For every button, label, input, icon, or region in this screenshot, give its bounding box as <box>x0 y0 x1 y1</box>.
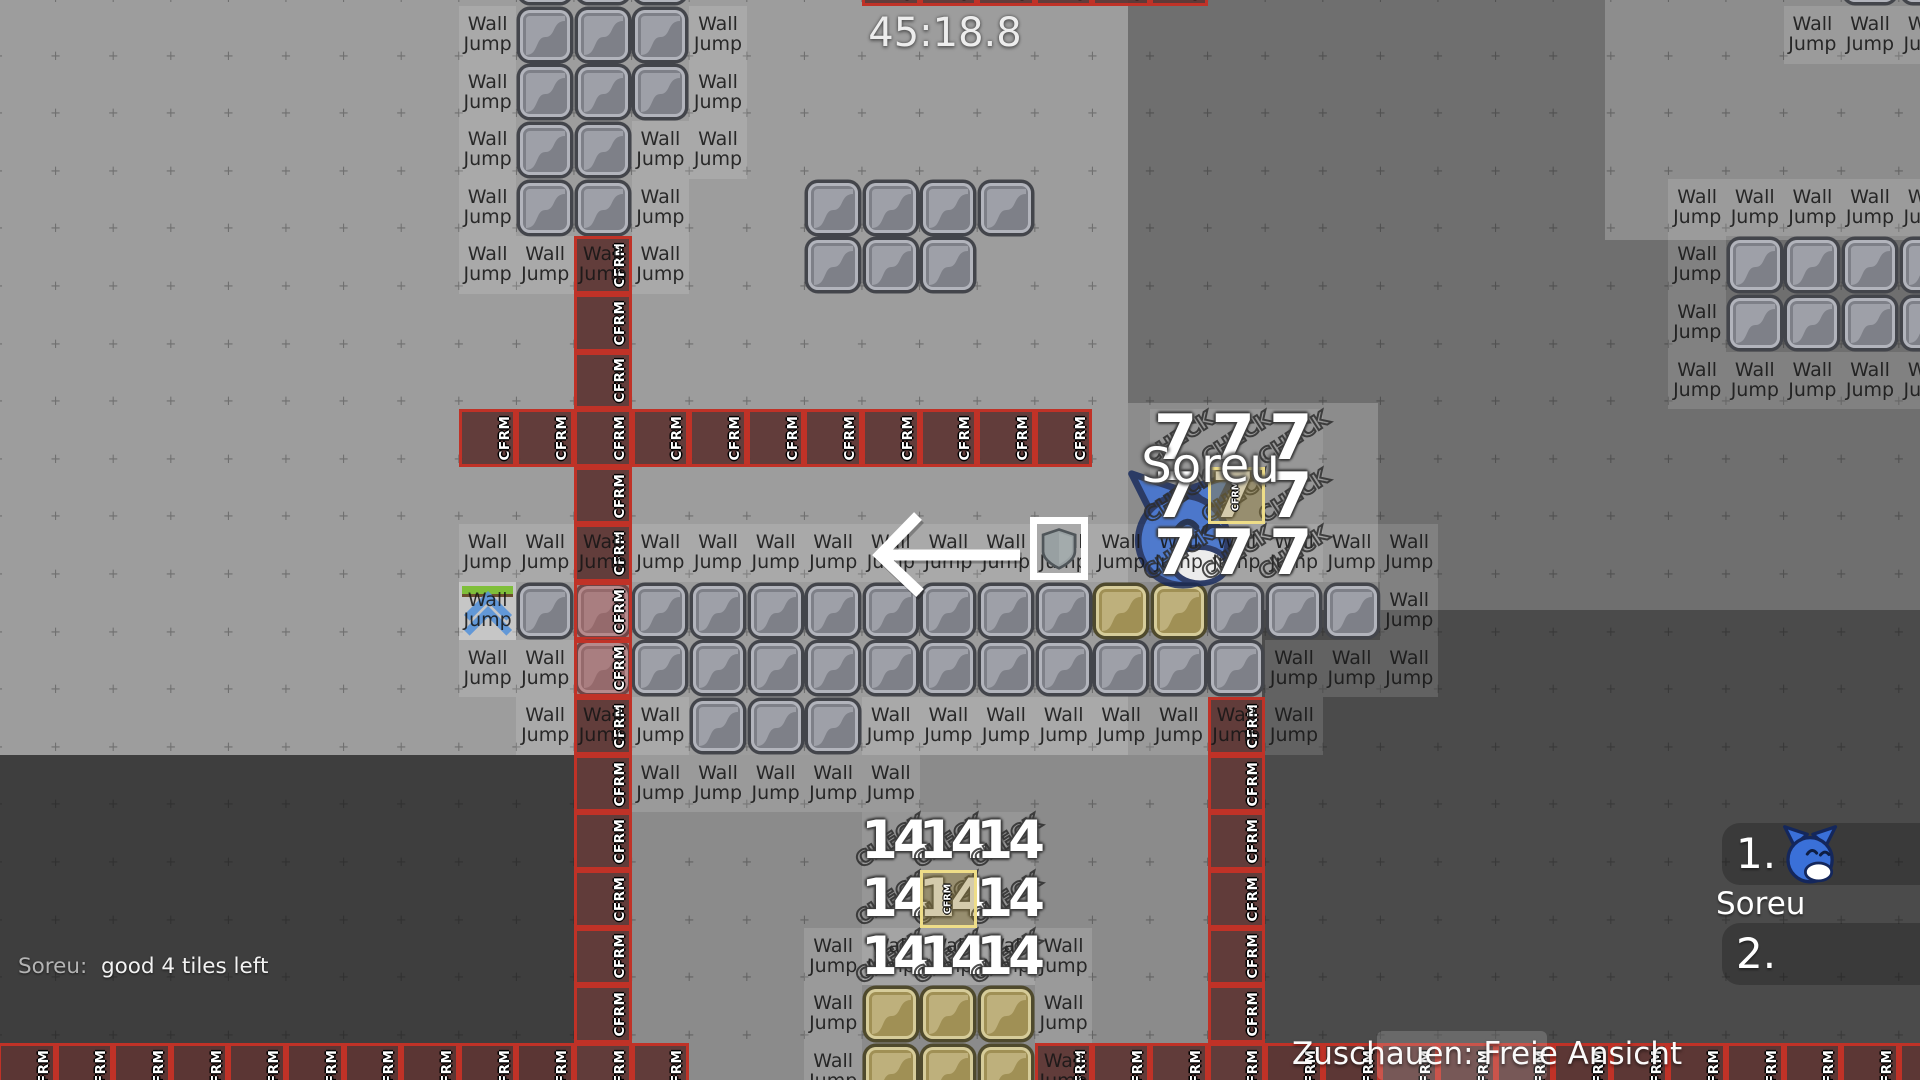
wall-jump-line2: Jump <box>1270 724 1318 746</box>
wall-jump-label: WallJump <box>1265 640 1323 698</box>
wall-jump-label: WallJump <box>459 236 517 294</box>
tile-swoosh <box>696 589 741 634</box>
wall-jump-line2: Jump <box>1097 551 1145 573</box>
cfrm-label: CFRM <box>1899 1043 1920 1080</box>
wall-jump-line2: Jump <box>694 551 742 573</box>
wall-jump-label: WallJump <box>1323 524 1381 582</box>
cfrm-label: CFRM <box>1726 1043 1784 1080</box>
cfrm-label-text: CFRM <box>957 416 973 461</box>
map-tile-gold <box>981 989 1031 1039</box>
switch-number: 14 <box>977 928 1035 986</box>
map-tile-gray <box>1730 298 1780 348</box>
tile-swoosh <box>869 243 914 288</box>
wall-jump-line2: Jump <box>636 724 684 746</box>
wall-jump-line1: Wall <box>1908 13 1920 35</box>
wall-jump-label: WallJump <box>1380 524 1438 582</box>
cfrm-label-text: CFRM <box>36 1049 52 1080</box>
wall-jump-line2: Jump <box>694 91 742 113</box>
switch-number: 14 <box>920 928 978 986</box>
wall-jump-line1: Wall <box>698 531 738 553</box>
wall-jump-line1: Wall <box>698 128 738 150</box>
wall-jump-line1: Wall <box>1677 186 1717 208</box>
tile-swoosh <box>638 646 683 691</box>
map-tile-gold <box>866 989 916 1039</box>
tile-swoosh <box>754 646 799 691</box>
wall-jump-label: WallJump <box>516 236 574 294</box>
tile-swoosh <box>926 186 971 231</box>
map-tile-gray <box>520 125 570 175</box>
cfrm-label-text: CFRM <box>612 416 628 461</box>
wall-jump-line1: Wall <box>1908 186 1920 208</box>
cfrm-label-text: CFRM <box>93 1049 109 1080</box>
map-tile-gray <box>1845 240 1895 290</box>
wall-jump-line1: Wall <box>641 128 681 150</box>
wall-jump-line1: Wall <box>1044 992 1084 1014</box>
wall-jump-line1: Wall <box>1850 186 1890 208</box>
map-tile-gray <box>1096 643 1146 693</box>
map-tile-gray <box>981 183 1031 233</box>
tile-swoosh <box>869 992 914 1037</box>
wall-jump-label: WallJump <box>689 6 747 64</box>
wall-jump-label: WallJump <box>1035 928 1093 986</box>
player-nameplate: Soreu <box>1128 438 1293 494</box>
wall-jump-label: WallJump <box>862 755 920 813</box>
wall-jump-line1: Wall <box>1850 359 1890 381</box>
wall-jump-label: WallJump <box>1841 179 1899 237</box>
wall-jump-line2: Jump <box>1731 206 1779 228</box>
scoreboard-row-1: 1. <box>1722 823 1920 885</box>
map-tile-gray <box>1730 240 1780 290</box>
wall-jump-line2: Jump <box>751 551 799 573</box>
wall-jump-line2: Jump <box>1155 724 1203 746</box>
wall-jump-label: WallJump <box>1208 697 1266 755</box>
cfrm-label-text: CFRM <box>612 358 628 403</box>
cfrm-label-text: CFRM <box>612 992 628 1037</box>
map-tile-gray <box>635 10 685 60</box>
scoreboard-rank-1: 1. <box>1736 823 1776 885</box>
tile-swoosh <box>1214 589 1259 634</box>
direction-arrow-left <box>860 500 1040 610</box>
wall-jump-line1: Wall <box>583 243 623 265</box>
wall-jump-line1: Wall <box>1101 531 1141 553</box>
wall-jump-line1: Wall <box>1044 1050 1084 1072</box>
cfrm-label-text: CFRM <box>1188 1049 1204 1080</box>
tile-swoosh <box>811 186 856 231</box>
wall-jump-line2: Jump <box>636 782 684 804</box>
wall-jump-label: WallJump <box>574 697 632 755</box>
wall-jump-line1: Wall <box>468 589 508 611</box>
map-tile-gray <box>751 701 801 751</box>
cfrm-label-text: CFRM <box>785 416 801 461</box>
map-tile-gray <box>1903 240 1920 290</box>
cfrm-label: CFRM <box>574 640 632 698</box>
tile-swoosh <box>1733 243 1778 288</box>
wall-jump-label: WallJump <box>459 640 517 698</box>
game-viewport: ++++++++++++++++++++++++++++++++++++++++… <box>0 0 1920 1080</box>
wall-jump-line2: Jump <box>809 1012 857 1034</box>
wall-jump-label: WallJump <box>574 524 632 582</box>
wall-jump-line1: Wall <box>1793 186 1833 208</box>
wall-jump-label: WallJump <box>1668 179 1726 237</box>
wall-jump-line2: Jump <box>809 551 857 573</box>
wall-jump-line2: Jump <box>1270 667 1318 689</box>
cfrm-label-text: CFRM <box>669 416 685 461</box>
wall-jump-label: WallJump <box>1092 524 1150 582</box>
switch-number-text: 14 <box>976 929 1040 985</box>
tile-swoosh <box>638 13 683 58</box>
map-tile-gray <box>520 67 570 117</box>
cfrm-label: CFRM <box>1035 409 1093 467</box>
tile-swoosh <box>984 646 1029 691</box>
wall-jump-line2: Jump <box>1673 321 1721 343</box>
wall-jump-line2: Jump <box>636 206 684 228</box>
cfrm-label: CFRM <box>574 755 632 813</box>
cfrm-label: CFRM <box>516 409 574 467</box>
map-tile-gray <box>1787 240 1837 290</box>
wall-jump-label: WallJump <box>1380 640 1438 698</box>
map-tile-gray <box>1327 586 1377 636</box>
map-tile-gray <box>981 643 1031 693</box>
cfrm-label: CFRM <box>1208 1043 1266 1080</box>
cfrm-label: CFRM <box>574 812 632 870</box>
wall-jump-line2: Jump <box>1846 379 1894 401</box>
wall-jump-label: WallJump <box>804 985 862 1043</box>
wall-jump-label: WallJump <box>689 755 747 813</box>
cfrm-label-text: CFRM <box>1245 876 1261 921</box>
tile-swoosh <box>1157 646 1202 691</box>
wall-jump-line2: Jump <box>463 551 511 573</box>
switch-number-text: 7 <box>1269 524 1312 581</box>
wall-jump-line2: Jump <box>1385 667 1433 689</box>
wall-jump-label: WallJump <box>516 524 574 582</box>
map-tile-gray <box>578 183 628 233</box>
wall-jump-line1: Wall <box>468 128 508 150</box>
wall-jump-line1: Wall <box>698 13 738 35</box>
wall-jump-label: WallJump <box>1035 697 1093 755</box>
shield-icon <box>1037 524 1081 573</box>
wall-jump-label: WallJump <box>1841 6 1899 64</box>
wall-jump-label: WallJump <box>804 1043 862 1080</box>
map-tile-gray <box>751 643 801 693</box>
wall-jump-line1: Wall <box>1677 359 1717 381</box>
wall-jump-label: WallJump <box>1150 697 1208 755</box>
tile-swoosh <box>1042 589 1087 634</box>
cfrm-label-text: CFRM <box>1879 1049 1895 1080</box>
switch-number: 7 <box>1208 524 1266 582</box>
cfrm-label-text: CFRM <box>612 588 628 633</box>
switch-number: 14 <box>862 812 920 870</box>
cfrm-label-text: CFRM <box>209 1049 225 1080</box>
cfrm-label: CFRM <box>113 1043 171 1080</box>
wall-jump-line1: Wall <box>756 762 796 784</box>
switch-number: 7 <box>1150 524 1208 582</box>
wall-jump-line1: Wall <box>698 71 738 93</box>
cfrm-label: CFRM <box>56 1043 114 1080</box>
wall-jump-line2: Jump <box>1903 206 1920 228</box>
wall-jump-label: WallJump <box>862 697 920 755</box>
map-tile-gray <box>1269 586 1319 636</box>
cfrm-label: CFRM <box>574 985 632 1043</box>
tile-swoosh <box>523 13 568 58</box>
wall-jump-line2: Jump <box>1731 379 1779 401</box>
wall-jump-line2: Jump <box>1385 551 1433 573</box>
wall-jump-line1: Wall <box>871 762 911 784</box>
wall-jump-line1: Wall <box>525 531 565 553</box>
wall-jump-label: WallJump <box>747 755 805 813</box>
wall-jump-line2: Jump <box>1846 33 1894 55</box>
wall-jump-line2: Jump <box>1039 1012 1087 1034</box>
wall-jump-label: WallJump <box>1092 697 1150 755</box>
wall-jump-line2: Jump <box>982 724 1030 746</box>
tile-swoosh <box>1099 646 1144 691</box>
map-tile-gray <box>808 240 858 290</box>
wall-jump-line1: Wall <box>641 704 681 726</box>
wall-jump-line2: Jump <box>867 782 915 804</box>
wall-jump-line2: Jump <box>809 1070 857 1080</box>
cfrm-label: CFRM <box>1784 1043 1842 1080</box>
wall-jump-line1: Wall <box>468 186 508 208</box>
wall-jump-line1: Wall <box>1101 704 1141 726</box>
wall-jump-label: WallJump <box>1380 582 1438 640</box>
cfrm-label: CFRM <box>977 409 1035 467</box>
wall-jump-line1: Wall <box>1044 935 1084 957</box>
wall-jump-label: WallJump <box>1668 294 1726 352</box>
wall-jump-label: WallJump <box>1265 697 1323 755</box>
switch-number: 14 <box>862 928 920 986</box>
wall-jump-label: WallJump <box>747 524 805 582</box>
map-tile-gray <box>693 586 743 636</box>
wall-jump-line1: Wall <box>1389 647 1429 669</box>
tile-swoosh <box>1214 646 1259 691</box>
cfrm-label: CFRM <box>1208 985 1266 1043</box>
wall-jump-label: WallJump <box>516 640 574 698</box>
cfrm-label: CFRM <box>632 1043 690 1080</box>
mini-cfrm-label: CFRM <box>923 873 975 925</box>
cfrm-label: CFRM <box>574 352 632 410</box>
cfrm-label-text: CFRM <box>554 416 570 461</box>
switch-number-text: 7 <box>1154 524 1197 581</box>
wall-jump-label: WallJump <box>804 928 862 986</box>
cfrm-label: CFRM <box>344 1043 402 1080</box>
wall-jump-label: WallJump <box>632 697 690 755</box>
cfrm-label-text: CFRM <box>1245 992 1261 1037</box>
wall-jump-label: WallJump <box>459 179 517 237</box>
wall-jump-label: WallJump <box>804 755 862 813</box>
map-tile-gray <box>808 643 858 693</box>
wall-jump-line1: Wall <box>1332 647 1372 669</box>
cfrm-label: CFRM <box>1208 812 1266 870</box>
wall-jump-line1: Wall <box>813 992 853 1014</box>
wall-jump-label: WallJump <box>1323 640 1381 698</box>
cfrm-label-text: CFRM <box>612 819 628 864</box>
wall-jump-label: WallJump <box>920 697 978 755</box>
cfrm-label: CFRM <box>574 409 632 467</box>
tile-swoosh <box>523 70 568 115</box>
switch-number: 14 <box>920 812 978 870</box>
wall-jump-line2: Jump <box>579 724 627 746</box>
wall-jump-line1: Wall <box>1677 243 1717 265</box>
tile-swoosh <box>926 646 971 691</box>
chat-author: Soreu: <box>18 954 87 979</box>
wall-jump-line1: Wall <box>1793 359 1833 381</box>
cfrm-label-text: CFRM <box>612 473 628 518</box>
armor-pickup-marker <box>1030 517 1088 580</box>
chat-line: Soreu: good 4 tiles left <box>18 954 268 979</box>
wall-jump-line2: Jump <box>694 782 742 804</box>
wall-jump-label: WallJump <box>459 582 517 640</box>
tile-swoosh <box>984 186 1029 231</box>
cfrm-label: CFRM <box>1208 755 1266 813</box>
tile-swoosh <box>984 992 1029 1037</box>
map-tile-gray <box>866 643 916 693</box>
cfrm-label-text: CFRM <box>1821 1049 1837 1080</box>
wall-jump-label: WallJump <box>632 755 690 813</box>
wall-jump-line1: Wall <box>1677 301 1717 323</box>
map-tile-gray <box>1211 643 1261 693</box>
wall-jump-line2: Jump <box>1673 206 1721 228</box>
map-tile-gray <box>520 586 570 636</box>
wall-jump-line1: Wall <box>1793 13 1833 35</box>
wall-jump-line1: Wall <box>1735 359 1775 381</box>
tile-swoosh <box>696 704 741 749</box>
wall-jump-line2: Jump <box>636 551 684 573</box>
map-tile-gray <box>635 643 685 693</box>
wall-jump-line2: Jump <box>521 667 569 689</box>
tile-swoosh <box>926 243 971 288</box>
cfrm-label-text: CFRM <box>497 1049 513 1080</box>
cfrm-label: CFRM <box>1208 928 1266 986</box>
cfrm-label: CFRM <box>1841 1043 1899 1080</box>
cfrm-label-text: CFRM <box>612 300 628 345</box>
map-tile-gray <box>751 586 801 636</box>
switch-number: 7 <box>1265 524 1323 582</box>
cfrm-label: CFRM <box>920 0 978 6</box>
tile-swoosh <box>1848 301 1893 346</box>
cfrm-label-text: CFRM <box>612 1049 628 1080</box>
tile-swoosh <box>1906 243 1920 288</box>
switch-number-text: 7 <box>1212 524 1255 581</box>
wall-jump-line2: Jump <box>694 33 742 55</box>
wall-jump-line1: Wall <box>468 243 508 265</box>
wall-jump-label: WallJump <box>632 121 690 179</box>
cfrm-label-text: CFRM <box>842 416 858 461</box>
map-tile-gold <box>981 1047 1031 1080</box>
wall-jump-line2: Jump <box>579 263 627 285</box>
scoreboard-name-1: Soreu <box>1716 886 1805 922</box>
wall-jump-line2: Jump <box>463 33 511 55</box>
wall-jump-label: WallJump <box>1668 236 1726 294</box>
tile-swoosh <box>1733 301 1778 346</box>
wall-jump-label: WallJump <box>689 524 747 582</box>
wall-jump-line1: Wall <box>1217 704 1257 726</box>
tile-swoosh <box>1099 589 1144 634</box>
map-tile-gray <box>923 240 973 290</box>
wall-jump-line1: Wall <box>468 647 508 669</box>
cfrm-label: CFRM <box>574 582 632 640</box>
map-tile-gray <box>693 643 743 693</box>
blue-cat-tee-icon <box>1780 824 1840 884</box>
map-tile-gray <box>808 586 858 636</box>
wall-jump-line2: Jump <box>463 206 511 228</box>
cfrm-label-text: CFRM <box>439 1049 455 1080</box>
wall-jump-label: WallJump <box>689 121 747 179</box>
tile-swoosh <box>696 646 741 691</box>
wall-jump-line1: Wall <box>1274 647 1314 669</box>
cfrm-label: CFRM <box>574 870 632 928</box>
map-tile-gray <box>1039 586 1089 636</box>
tile-swoosh <box>581 70 626 115</box>
wall-jump-line1: Wall <box>641 531 681 553</box>
wall-jump-line2: Jump <box>521 551 569 573</box>
tile-swoosh <box>1042 646 1087 691</box>
wall-jump-label: WallJump <box>1784 6 1842 64</box>
wall-jump-line2: Jump <box>579 551 627 573</box>
map-tile-gold <box>923 989 973 1039</box>
wall-jump-line1: Wall <box>813 1050 853 1072</box>
wall-jump-line1: Wall <box>1274 704 1314 726</box>
wall-jump-line2: Jump <box>694 148 742 170</box>
wall-jump-label: WallJump <box>459 121 517 179</box>
tile-swoosh <box>523 128 568 173</box>
wall-jump-line2: Jump <box>463 148 511 170</box>
map-tile-gray <box>866 183 916 233</box>
tile-swoosh <box>638 589 683 634</box>
wall-jump-line1: Wall <box>813 935 853 957</box>
cfrm-label-text: CFRM <box>497 416 513 461</box>
wall-jump-label: WallJump <box>1899 352 1920 410</box>
wall-jump-label: WallJump <box>1035 1043 1093 1080</box>
tile-swoosh <box>869 1050 914 1080</box>
wall-jump-line2: Jump <box>521 263 569 285</box>
wall-jump-line2: Jump <box>1673 379 1721 401</box>
cfrm-label: CFRM <box>862 0 920 6</box>
wall-jump-line2: Jump <box>636 148 684 170</box>
wall-jump-label: WallJump <box>459 524 517 582</box>
wall-jump-line2: Jump <box>1788 206 1836 228</box>
cfrm-label: CFRM <box>747 409 805 467</box>
wall-jump-label: WallJump <box>632 179 690 237</box>
wall-jump-line1: Wall <box>1850 13 1890 35</box>
wall-jump-line1: Wall <box>1044 704 1084 726</box>
cfrm-label: CFRM <box>862 409 920 467</box>
chat-message: good 4 tiles left <box>94 954 268 979</box>
tile-swoosh <box>581 128 626 173</box>
wall-jump-label: WallJump <box>977 697 1035 755</box>
map-tile-gray <box>1211 586 1261 636</box>
tile-swoosh <box>754 704 799 749</box>
wall-jump-line1: Wall <box>468 531 508 553</box>
wall-jump-line2: Jump <box>1097 724 1145 746</box>
wall-jump-line2: Jump <box>809 782 857 804</box>
wall-jump-line2: Jump <box>636 263 684 285</box>
wall-jump-line2: Jump <box>1039 955 1087 977</box>
cfrm-label: CFRM <box>574 928 632 986</box>
cfrm-label: CFRM <box>459 1043 517 1080</box>
cfrm-label: CFRM <box>228 1043 286 1080</box>
cfrm-label: CFRM <box>1208 870 1266 928</box>
cfrm-label: CFRM <box>977 0 1035 6</box>
map-tile-gray <box>520 10 570 60</box>
tile-swoosh <box>869 186 914 231</box>
cfrm-label-text: CFRM <box>1130 1049 1146 1080</box>
map-tile-gray <box>693 701 743 751</box>
map-tile-gray <box>808 183 858 233</box>
wall-jump-line1: Wall <box>813 762 853 784</box>
wall-jump-line2: Jump <box>463 609 511 631</box>
wall-jump-line2: Jump <box>1039 724 1087 746</box>
wall-jump-label: WallJump <box>1668 352 1726 410</box>
map-tile-gold <box>1096 586 1146 636</box>
